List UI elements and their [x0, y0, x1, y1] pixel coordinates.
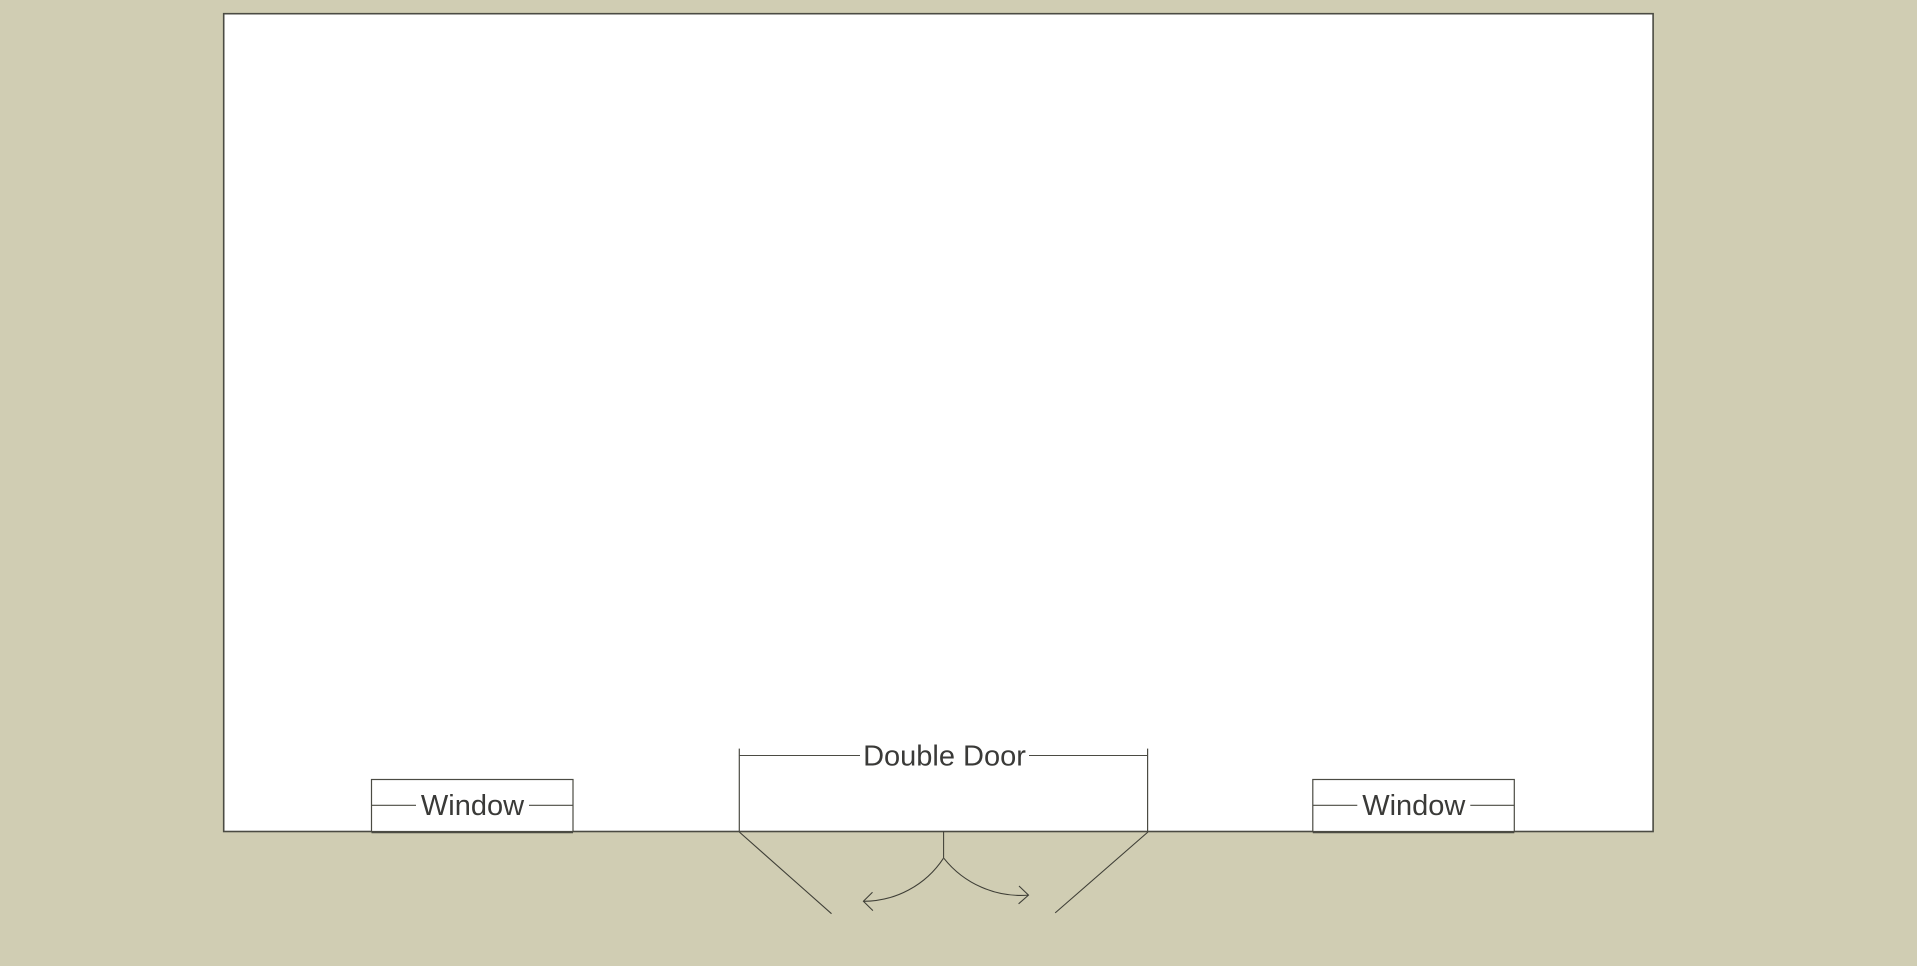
- svg-text:Window: Window: [421, 790, 525, 822]
- svg-text:Window: Window: [1362, 790, 1466, 822]
- svg-text:Double Door: Double Door: [863, 740, 1026, 772]
